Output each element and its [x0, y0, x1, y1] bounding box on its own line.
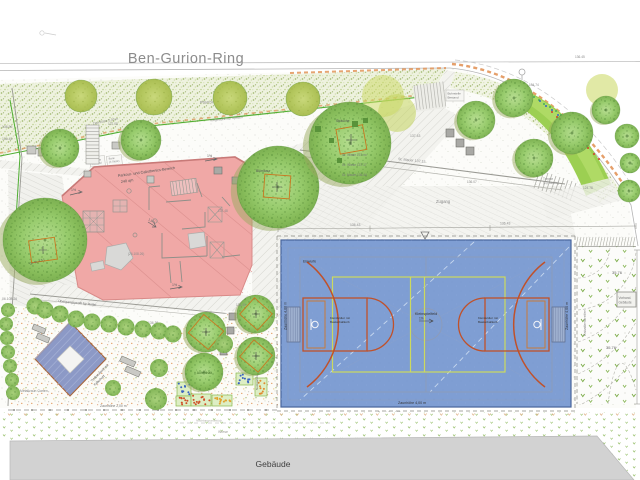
- svg-text:136.36: 136.36: [236, 303, 246, 307]
- svg-text:Bestand: Bestand: [448, 96, 459, 100]
- svg-text:Nutzgarten: Nutzgarten: [255, 375, 259, 390]
- svg-text:137.08: 137.08: [108, 122, 118, 126]
- svg-text:Zaunhöhe 4,00 m: Zaunhöhe 4,00 m: [565, 302, 569, 330]
- svg-text:Kleinspielfeld: Kleinspielfeld: [415, 312, 437, 316]
- svg-text:Zaunhöhe 4,00 m: Zaunhöhe 4,00 m: [284, 302, 288, 330]
- svg-text:124.78: 124.78: [583, 186, 593, 190]
- svg-text:137.48: 137.48: [218, 209, 228, 213]
- svg-text:Zaunhöhe 2,00 m: Zaunhöhe 2,00 m: [100, 404, 127, 408]
- svg-text:Gr. Wiese 137.17: Gr. Wiese 137.17: [342, 163, 367, 167]
- svg-text:Zaunhöhe 4,00 m: Zaunhöhe 4,00 m: [398, 401, 426, 405]
- svg-text:136.07: 136.07: [467, 180, 477, 184]
- svg-text:Basketballkorb: Basketballkorb: [478, 320, 498, 324]
- svg-text:136.43: 136.43: [500, 222, 510, 226]
- svg-text:Blümbaur: Blümbaur: [256, 169, 271, 173]
- svg-text:06.108.26: 06.108.26: [2, 297, 17, 301]
- svg-text:Ben-Gurion-Ring: Ben-Gurion-Ring: [128, 51, 244, 67]
- svg-text:1%: 1%: [419, 317, 424, 321]
- svg-text:Vorhand.: Vorhand.: [619, 296, 632, 300]
- svg-text:136.45: 136.45: [2, 137, 12, 141]
- svg-text:Rabattenstreifen: Rabattenstreifen: [583, 310, 587, 336]
- svg-text:Metallzaun Garten: Metallzaun Garten: [20, 389, 48, 393]
- svg-text:Einwurfe: Einwurfe: [303, 260, 316, 264]
- svg-text:Gr. Wiese 137 m²: Gr. Wiese 137 m²: [342, 153, 367, 157]
- svg-text:1%: 1%: [71, 188, 76, 192]
- svg-text:137.43: 137.43: [410, 134, 420, 138]
- svg-text:136.43: 136.43: [350, 223, 360, 227]
- svg-text:134.74: 134.74: [529, 83, 539, 87]
- svg-text:1%: 1%: [207, 154, 212, 158]
- svg-text:35.76: 35.76: [606, 345, 617, 350]
- svg-text:(26.108.26): (26.108.26): [128, 252, 144, 256]
- svg-text:Basketballkorb: Basketballkorb: [330, 320, 350, 324]
- svg-text:(13 Stufen): (13 Stufen): [543, 181, 559, 185]
- svg-text:136.45: 136.45: [575, 55, 585, 59]
- svg-text:1%: 1%: [172, 283, 177, 287]
- svg-text:Wiese: Wiese: [218, 430, 228, 434]
- svg-text:Zugang: Zugang: [436, 199, 451, 204]
- svg-text:136.96: 136.96: [2, 125, 12, 129]
- svg-text:Gebäude: Gebäude: [619, 301, 632, 305]
- svg-text:Gr. Mauer 136.44: Gr. Mauer 136.44: [342, 173, 367, 177]
- svg-text:Sträuche: Sträuche: [336, 119, 350, 123]
- svg-text:+ Aufenthalt: + Aufenthalt: [194, 371, 212, 375]
- svg-text:Nachbargrundstück: Nachbargrundstück: [196, 419, 223, 423]
- svg-text:35.76: 35.76: [612, 270, 623, 275]
- svg-text:Gebäude: Gebäude: [256, 459, 291, 469]
